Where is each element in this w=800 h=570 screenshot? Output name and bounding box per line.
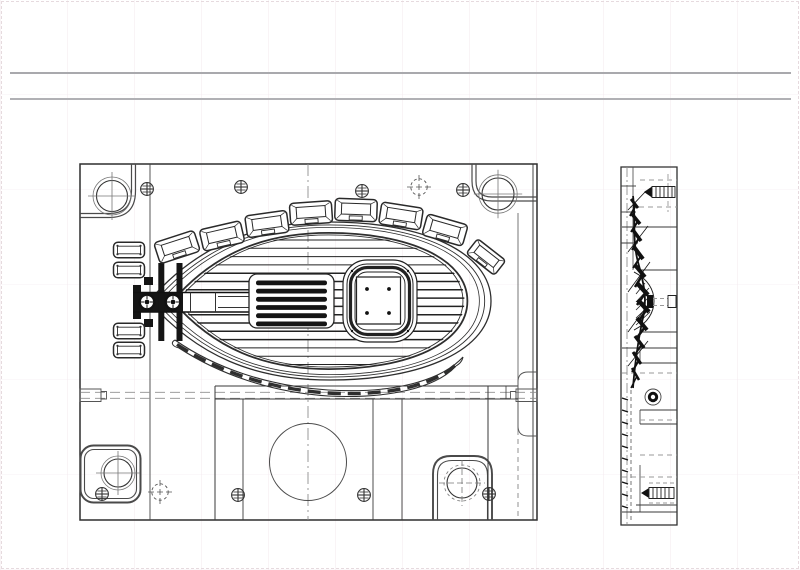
side-view-steps <box>621 186 677 512</box>
guide-pin-circle <box>96 451 140 495</box>
drawing-sheet <box>0 0 800 570</box>
edge-boss <box>154 230 201 264</box>
screw-mark <box>141 183 154 196</box>
right-edge-notch <box>518 372 537 436</box>
crosshair-mark <box>407 175 431 199</box>
screw-mark <box>235 181 248 194</box>
side-bolt-bottom <box>641 483 677 503</box>
edge-boss <box>245 210 290 238</box>
edge-bosses <box>154 198 506 275</box>
center-square-insert <box>343 260 417 342</box>
runner-screw <box>166 295 181 310</box>
left-pad <box>114 323 145 339</box>
screw-mark <box>232 489 245 502</box>
screw-mark <box>457 184 470 197</box>
guide-pin-circle <box>439 460 485 506</box>
edge-boss <box>466 239 506 276</box>
mold-assembly-drawing <box>0 0 800 570</box>
guide-pin-circle <box>88 172 136 220</box>
edge-boss <box>422 214 468 247</box>
plan-view <box>80 164 537 520</box>
screw-mark <box>356 185 369 198</box>
left-pad <box>114 242 145 258</box>
edge-boss <box>199 221 245 252</box>
side-view-hidden-lines <box>622 174 677 477</box>
section-profile-hatch <box>622 191 650 508</box>
guide-block-bottom-right <box>433 456 492 520</box>
screw-mark <box>96 488 109 501</box>
ejector-housing <box>215 386 518 520</box>
side-ejector-ring <box>645 389 661 405</box>
screw-mark <box>358 489 371 502</box>
guide-pin-circle <box>474 170 522 218</box>
screw-mark <box>483 488 496 501</box>
runner-screw <box>140 295 155 310</box>
edge-boss <box>289 201 332 226</box>
side-section-view <box>621 167 677 525</box>
left-pad <box>114 262 145 278</box>
left-pad <box>114 342 145 358</box>
edge-boss <box>335 198 378 221</box>
crosshair-mark <box>148 480 172 504</box>
side-screw-top <box>644 187 675 198</box>
ribbed-insert-block <box>249 274 334 328</box>
